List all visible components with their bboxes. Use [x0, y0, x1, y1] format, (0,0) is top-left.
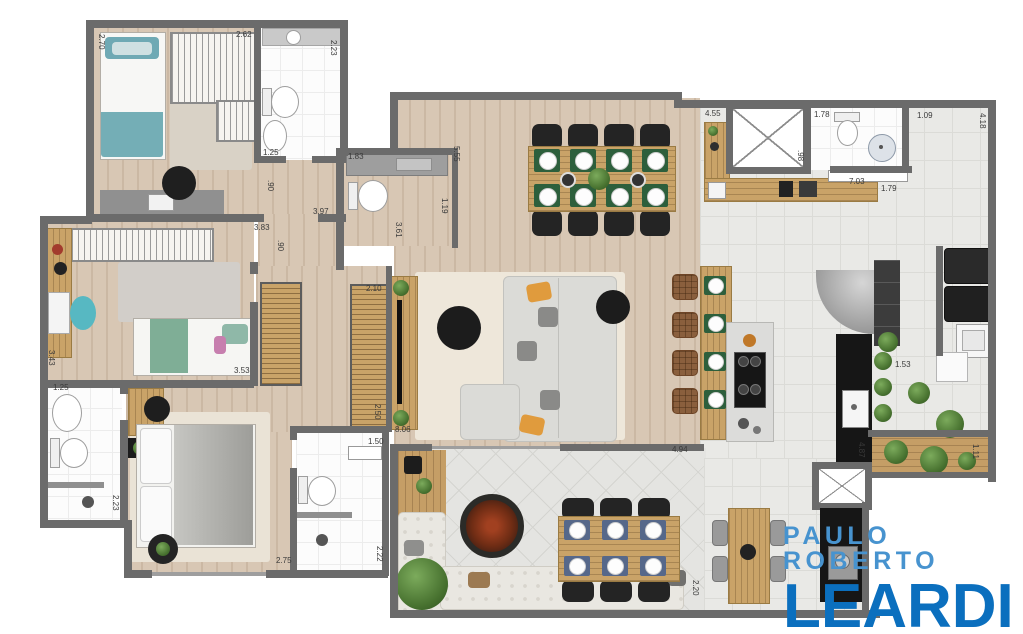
laundry-sink-basin [962, 330, 985, 351]
wall [988, 100, 996, 482]
master-pillow [140, 486, 172, 542]
outdoor-pillow-gray [404, 540, 424, 556]
wall [124, 520, 132, 576]
bath1-pedestal-sink [263, 120, 287, 152]
wall [250, 262, 258, 274]
wc-toilet-bowl [837, 120, 858, 146]
wall [902, 104, 909, 173]
dining-chair [604, 210, 634, 236]
terrace-plate [645, 522, 662, 539]
closet-1 [170, 32, 260, 104]
sofa-chaise [460, 384, 520, 440]
hall-chair [712, 556, 728, 582]
wc-sink-drain [879, 145, 883, 149]
dining-bowl [630, 172, 646, 188]
wall [866, 472, 996, 478]
bath3-shelf [348, 446, 382, 460]
wall [386, 266, 392, 432]
plate [539, 188, 557, 206]
toilet3-tank [298, 476, 308, 504]
bed1-blanket [101, 112, 163, 157]
green-wall-plant [874, 378, 892, 396]
pouf-plant [156, 542, 170, 556]
desk-chair-1 [162, 166, 196, 200]
shower-head-3 [316, 534, 328, 546]
side-table [596, 290, 630, 324]
toilet2-tank [50, 438, 60, 468]
wall [390, 92, 682, 100]
toilet3-bowl [308, 476, 336, 506]
wall [390, 444, 398, 618]
dining-bowl [560, 172, 576, 188]
toilet2-bowl [60, 438, 88, 468]
wall [120, 386, 128, 394]
wall [336, 155, 344, 270]
wall [804, 104, 811, 174]
hall-chair [712, 520, 728, 546]
wardrobe-right [350, 284, 388, 432]
bed2-blanket [150, 319, 188, 373]
closet-2 [70, 228, 214, 262]
toilet-lavabo-tank [348, 182, 358, 210]
bedroom2-rug [118, 262, 240, 322]
green-wall-plant [874, 352, 892, 370]
sofa-pillow-gray-1 [538, 307, 558, 327]
tv [397, 300, 402, 404]
bar-plate [708, 392, 724, 408]
tv-console [390, 276, 418, 430]
terrace-plate [607, 522, 624, 539]
shower-partition-3 [296, 512, 352, 518]
wall [254, 156, 286, 163]
toilet-lavabo-bowl [358, 180, 388, 212]
vanity-chair-teal [70, 296, 96, 330]
kettle [738, 418, 749, 429]
green-wall-plant [874, 404, 892, 422]
bath1-counter [262, 28, 342, 46]
bar-stool [672, 274, 698, 300]
fire-pit [460, 494, 524, 558]
wall [254, 26, 261, 160]
shower-partition-2 [46, 482, 104, 488]
terrace-chair [638, 580, 670, 602]
vanity-drawers [48, 292, 70, 334]
window-planter [936, 352, 968, 382]
bath1-round-sink [286, 30, 301, 45]
coffee-machine [779, 181, 793, 197]
wall [936, 246, 943, 356]
terrace-plant-large [396, 558, 448, 610]
outdoor-pillow-brown [468, 572, 490, 588]
console-plant-bottom [393, 410, 409, 426]
shower-head-2 [82, 496, 94, 508]
wall [266, 570, 388, 578]
cabinet-item [710, 142, 719, 151]
master-duvet [174, 425, 253, 545]
plate [539, 152, 557, 170]
sliding-door-track [432, 446, 560, 449]
coffee-table [437, 306, 481, 350]
deck-plant [958, 452, 976, 470]
wall [674, 100, 996, 108]
bar-stool [672, 388, 698, 414]
dining-chair [568, 210, 598, 236]
terrace-plant-small [416, 478, 432, 494]
plate [647, 152, 665, 170]
wall [120, 420, 128, 524]
wardrobe-left [260, 282, 302, 386]
vanity-item-dark [54, 262, 67, 275]
fridge [944, 248, 992, 284]
freezer [944, 286, 992, 322]
terrace-chair [600, 580, 632, 602]
plate [575, 188, 593, 206]
plate [575, 152, 593, 170]
master-desk-chair [144, 396, 170, 422]
wall [124, 570, 152, 578]
floor-plan: 2.702.622.231.25.903.973.83.901.835.551.… [0, 0, 1023, 634]
toilet1-bowl [271, 86, 299, 118]
wall [340, 20, 348, 156]
plate [611, 188, 629, 206]
terrace-plate [569, 558, 586, 575]
burner [738, 384, 749, 395]
terrace-chair [562, 580, 594, 602]
burner [738, 356, 749, 367]
deck-plant [884, 440, 908, 464]
bar-stool [672, 312, 698, 338]
console-plant-top [393, 280, 409, 296]
wall [382, 426, 389, 576]
wall [40, 520, 132, 528]
toaster-oven [799, 181, 817, 197]
wall [452, 148, 458, 248]
cabinet-plant-2 [878, 332, 898, 352]
wall [290, 426, 297, 440]
pot [753, 426, 761, 434]
window-master [152, 572, 266, 576]
island-bowl [743, 334, 756, 347]
wall [390, 92, 398, 152]
bed2-pillow-pink [214, 336, 226, 354]
wall [86, 214, 264, 222]
bar-plate [708, 278, 724, 294]
hall-table-bowl [740, 544, 756, 560]
balcony-plant [908, 382, 930, 404]
plate [647, 188, 665, 206]
terrace-plate [569, 522, 586, 539]
elevator-1 [726, 102, 810, 174]
dining-centerpiece [588, 168, 610, 190]
wall [86, 20, 348, 28]
sofa-seam [558, 278, 559, 438]
bistro-table [404, 456, 422, 474]
wall [86, 20, 94, 222]
dining-chair [640, 210, 670, 236]
wall [250, 302, 258, 386]
wall [830, 166, 912, 173]
wall [868, 430, 996, 437]
cooktop-small [708, 182, 726, 199]
brand-line1: PAULO ROBERTO [783, 524, 1023, 574]
bar-stool [672, 350, 698, 376]
lavabo-counter-sink [396, 158, 432, 171]
sofa-pillow-gray-3 [540, 390, 560, 410]
brand-line2: LEARDI [783, 576, 1023, 634]
bar-plate [708, 316, 724, 332]
terrace-plate [645, 558, 662, 575]
hall1-floor [258, 214, 344, 270]
brand-logo: PAULO ROBERTO LEARDI [783, 524, 1023, 634]
terrace-plate [607, 558, 624, 575]
cabinet-plant [708, 126, 718, 136]
master-pillow [140, 428, 172, 484]
wall [560, 444, 704, 451]
burner [750, 356, 761, 367]
bar-plate [708, 354, 724, 370]
vanity-bowl-red [52, 244, 63, 255]
burner [750, 384, 761, 395]
wall [290, 426, 388, 433]
deck-plant [920, 446, 948, 474]
island-faucet [851, 404, 857, 410]
sofa-pillow-gray-2 [517, 341, 537, 361]
bed1-pillow [112, 42, 152, 55]
dining-chair [532, 210, 562, 236]
bath2-sink [52, 394, 82, 432]
wall [290, 468, 297, 576]
wall [40, 216, 48, 528]
wall [40, 380, 254, 388]
plate [611, 152, 629, 170]
